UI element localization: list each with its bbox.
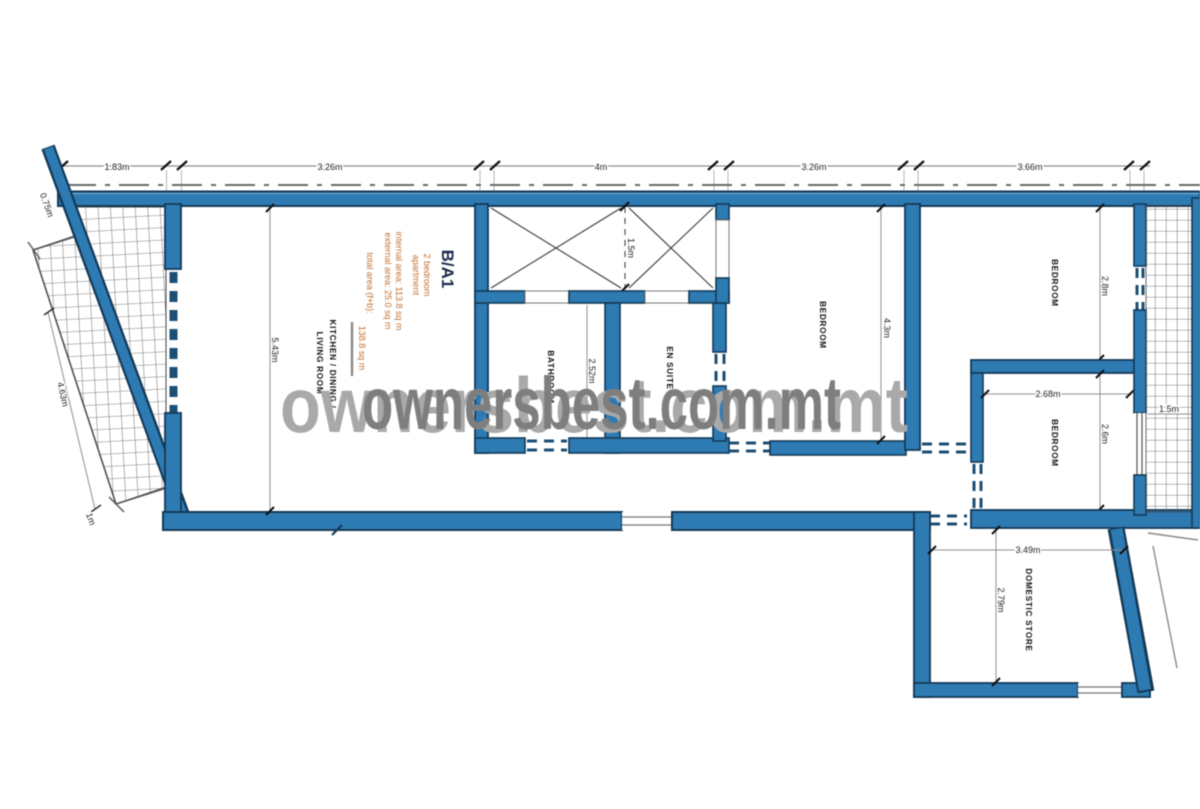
svg-text:1.5m: 1.5m [1159, 404, 1179, 414]
svg-text:3.49m: 3.49m [1015, 545, 1040, 555]
svg-text:2.79m: 2.79m [996, 587, 1006, 612]
svg-text:2 bedroom: 2 bedroom [422, 253, 432, 296]
svg-text:2.68m: 2.68m [1035, 389, 1060, 399]
svg-text:2.6m: 2.6m [1100, 424, 1110, 444]
svg-text:BEDROOM: BEDROOM [1050, 419, 1059, 467]
svg-text:1.83m: 1.83m [104, 162, 129, 172]
svg-text:apartment: apartment [411, 255, 421, 296]
svg-text:external area: 25.0 sq m: external area: 25.0 sq m [383, 232, 393, 329]
svg-text:BEDROOM: BEDROOM [818, 301, 827, 349]
svg-text:5.43m: 5.43m [270, 337, 280, 362]
svg-text:internal area: 113.8 sq m: internal area: 113.8 sq m [394, 232, 404, 331]
svg-text:total area (f+b):: total area (f+b): [365, 252, 375, 313]
svg-text:ownersbest.com.mt: ownersbest.com.mt [362, 362, 841, 445]
svg-text:4.3m: 4.3m [882, 318, 892, 338]
svg-text:DOMESTIC STORE: DOMESTIC STORE [1024, 568, 1033, 651]
svg-text:B/A1: B/A1 [438, 250, 457, 289]
svg-text:3.26m: 3.26m [801, 162, 826, 172]
svg-text:3.66m: 3.66m [1017, 162, 1042, 172]
svg-text:3.26m: 3.26m [317, 162, 342, 172]
svg-text:4m: 4m [595, 162, 608, 172]
svg-text:BEDROOM: BEDROOM [1050, 259, 1059, 307]
svg-text:2.8m: 2.8m [1100, 276, 1110, 296]
svg-text:1.5m: 1.5m [626, 238, 636, 258]
